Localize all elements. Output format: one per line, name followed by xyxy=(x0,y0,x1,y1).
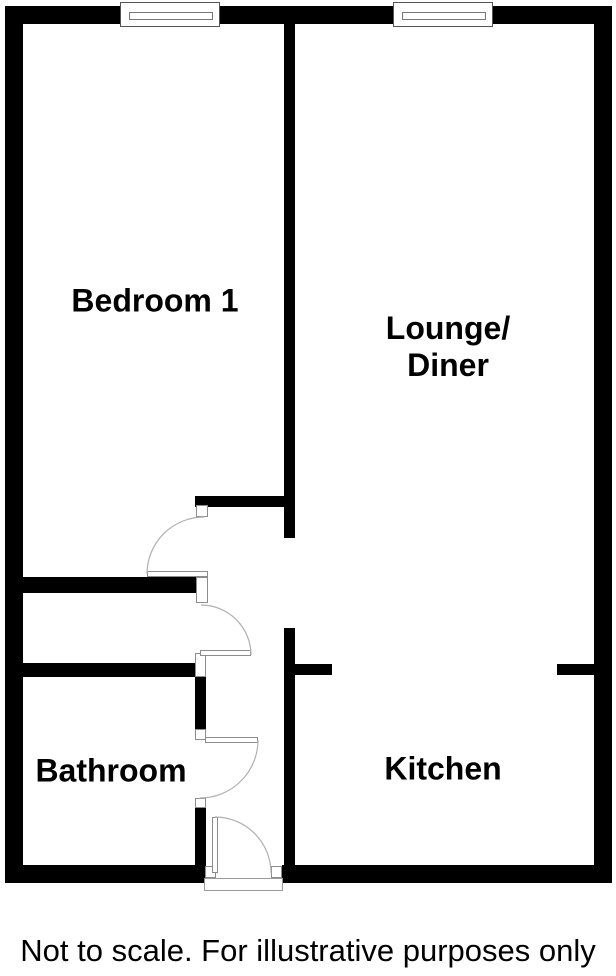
door-swing-arcs-layer xyxy=(0,0,616,976)
room-label-line: Bedroom 1 xyxy=(71,283,238,320)
room-label-line: Kitchen xyxy=(384,751,501,788)
room-label-kitchen: Kitchen xyxy=(384,751,501,788)
bathroom-door-leaf xyxy=(205,737,258,743)
room-label-lounge-diner: Lounge/Diner xyxy=(386,310,510,384)
room-label-bedroom-1: Bedroom 1 xyxy=(71,283,238,320)
room-label-line: Lounge/ xyxy=(386,310,510,347)
entrance-door-swing-arc xyxy=(215,817,271,873)
room-label-bathroom: Bathroom xyxy=(35,753,186,790)
right-wall xyxy=(594,6,612,883)
entrance-door-leaf xyxy=(212,817,218,873)
entrance-threshold xyxy=(204,878,283,891)
bedroom-door-jamb-top xyxy=(196,505,208,517)
kitchen-stub-right xyxy=(557,664,594,675)
scale-disclaimer: Not to scale. For illustrative purposes … xyxy=(0,933,616,969)
cupboard-door-swing-arc xyxy=(201,605,251,655)
bedroom-south-wall xyxy=(195,496,295,507)
cupboard-door-leaf xyxy=(200,650,251,656)
bathroom-door-swing-arc xyxy=(200,740,258,798)
bathroom-north-wall xyxy=(23,663,195,677)
bedroom-door-swing-arc xyxy=(147,517,204,574)
room-label-line: Bathroom xyxy=(35,753,186,790)
kitchen-stub-left xyxy=(295,664,332,675)
bathroom-east-wall-lower xyxy=(195,808,206,867)
entrance-jamb-right xyxy=(271,866,282,878)
window-glazing-bar xyxy=(129,12,213,20)
window-glazing-bar xyxy=(402,12,486,20)
cupboard-door-jamb-bottom xyxy=(195,653,206,677)
left-wall xyxy=(5,6,23,883)
room-label-line: Diner xyxy=(386,347,510,384)
bedroom-door-leaf xyxy=(147,571,208,577)
lounge-window xyxy=(393,2,493,27)
central-wall-lower xyxy=(284,628,295,865)
bedroom-window xyxy=(120,2,220,27)
bottom-wall-left xyxy=(5,865,205,883)
bathroom-east-wall-upper xyxy=(195,677,206,729)
cupboard-north-wall xyxy=(23,577,196,593)
top-wall xyxy=(5,6,612,24)
bedroom-door-jamb-bottom xyxy=(196,577,208,603)
bottom-wall-right xyxy=(282,865,612,883)
floorplan: Bedroom 1Lounge/DinerBathroomKitchen Not… xyxy=(0,0,616,976)
central-wall-upper xyxy=(284,24,295,538)
bathroom-door-jamb-bottom xyxy=(195,798,206,808)
